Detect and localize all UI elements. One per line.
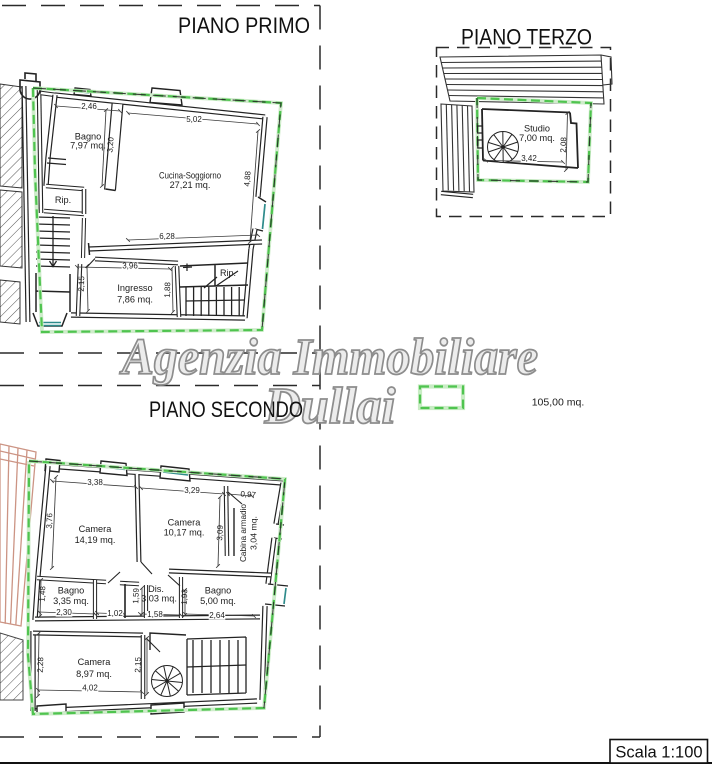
svg-text:3,38: 3,38 xyxy=(87,478,103,487)
svg-text:3,96: 3,96 xyxy=(122,262,138,271)
svg-text:Studio: Studio xyxy=(524,124,550,134)
svg-text:Bagno: Bagno xyxy=(58,586,85,596)
svg-text:5,02: 5,02 xyxy=(186,115,202,124)
svg-text:2,15: 2,15 xyxy=(77,275,87,291)
svg-text:3,20: 3,20 xyxy=(105,136,115,153)
svg-text:PIANO PRIMO: PIANO PRIMO xyxy=(178,13,310,38)
svg-text:Rip.: Rip. xyxy=(55,195,71,205)
svg-text:1,02: 1,02 xyxy=(107,609,123,618)
svg-text:Ingresso: Ingresso xyxy=(117,283,152,293)
svg-text:PIANO TERZO: PIANO TERZO xyxy=(461,25,592,50)
svg-text:14,19 mq.: 14,19 mq. xyxy=(75,535,116,545)
svg-text:2,30: 2,30 xyxy=(56,608,72,617)
svg-text:Cabina armadio: Cabina armadio xyxy=(238,504,248,562)
svg-text:3,04 mq.: 3,04 mq. xyxy=(249,516,259,550)
svg-text:6,28: 6,28 xyxy=(159,232,175,241)
svg-text:1,48: 1,48 xyxy=(38,585,48,602)
svg-text:1,88: 1,88 xyxy=(163,281,173,297)
svg-text:2,46: 2,46 xyxy=(81,102,97,111)
svg-text:3,29: 3,29 xyxy=(184,486,200,495)
svg-text:2,28: 2,28 xyxy=(36,656,46,672)
svg-text:5,00 mq.: 5,00 mq. xyxy=(200,596,236,606)
svg-text:Camera: Camera xyxy=(78,657,112,667)
svg-text:3,42: 3,42 xyxy=(521,154,537,163)
svg-text:1,93: 1,93 xyxy=(180,588,190,604)
svg-text:2,15: 2,15 xyxy=(133,656,143,672)
svg-text:Camera: Camera xyxy=(79,524,113,534)
svg-text:27,21 mq.: 27,21 mq. xyxy=(170,180,211,190)
svg-text:7,00 mq.: 7,00 mq. xyxy=(519,133,555,143)
svg-text:0,97: 0,97 xyxy=(240,489,257,499)
svg-text:Cucina-Soggiorno: Cucina-Soggiorno xyxy=(159,171,221,181)
svg-text:7,86 mq.: 7,86 mq. xyxy=(117,295,153,305)
svg-text:1,58: 1,58 xyxy=(147,610,163,619)
svg-text:4,02: 4,02 xyxy=(82,684,98,693)
svg-text:PIANO SECONDO: PIANO SECONDO xyxy=(149,397,303,422)
svg-text:105,00 mq.: 105,00 mq. xyxy=(532,397,585,409)
svg-text:8,97 mq.: 8,97 mq. xyxy=(76,669,112,679)
svg-text:4,88: 4,88 xyxy=(242,170,252,187)
svg-text:Bagno: Bagno xyxy=(205,586,232,596)
svg-text:3,03 mq.: 3,03 mq. xyxy=(141,594,177,604)
svg-text:10,17 mq.: 10,17 mq. xyxy=(164,528,205,538)
svg-text:Scala 1:100: Scala 1:100 xyxy=(615,744,702,762)
svg-text:Camera: Camera xyxy=(168,518,202,528)
svg-text:1,59: 1,59 xyxy=(131,587,141,603)
svg-text:2,64: 2,64 xyxy=(209,611,225,620)
svg-text:3,76: 3,76 xyxy=(45,512,55,529)
svg-text:Dis.: Dis. xyxy=(148,584,164,594)
svg-text:2,08: 2,08 xyxy=(559,136,569,152)
svg-text:3,35 mq.: 3,35 mq. xyxy=(53,596,89,606)
svg-text:Rip.: Rip. xyxy=(220,268,236,278)
svg-text:3,09: 3,09 xyxy=(215,524,225,541)
svg-text:7,97 mq.: 7,97 mq. xyxy=(70,141,106,151)
